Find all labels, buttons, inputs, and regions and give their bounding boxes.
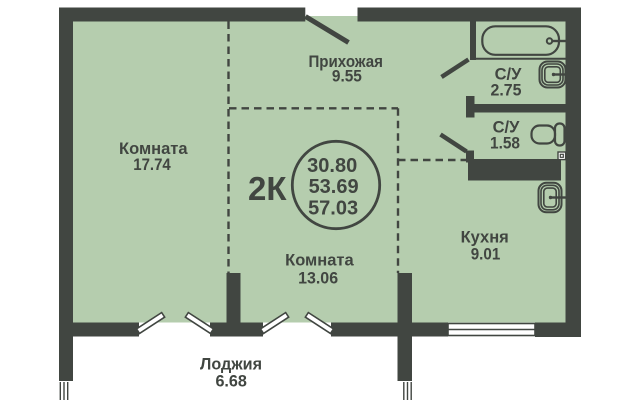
svg-text:13.06: 13.06 — [298, 270, 338, 288]
svg-text:2К: 2К — [248, 170, 287, 207]
svg-text:9.55: 9.55 — [332, 68, 362, 86]
svg-text:6.68: 6.68 — [215, 373, 247, 391]
svg-text:2.75: 2.75 — [491, 82, 522, 100]
svg-text:Лоджия: Лоджия — [200, 355, 262, 373]
svg-text:30.80: 30.80 — [307, 155, 357, 177]
svg-text:57.03: 57.03 — [308, 197, 358, 219]
svg-text:Комната: Комната — [285, 252, 354, 270]
svg-text:Кухня: Кухня — [461, 229, 509, 247]
svg-text:9.01: 9.01 — [471, 246, 501, 264]
svg-text:17.74: 17.74 — [133, 156, 171, 174]
svg-text:53.69: 53.69 — [309, 176, 359, 198]
svg-text:1.58: 1.58 — [490, 135, 520, 153]
